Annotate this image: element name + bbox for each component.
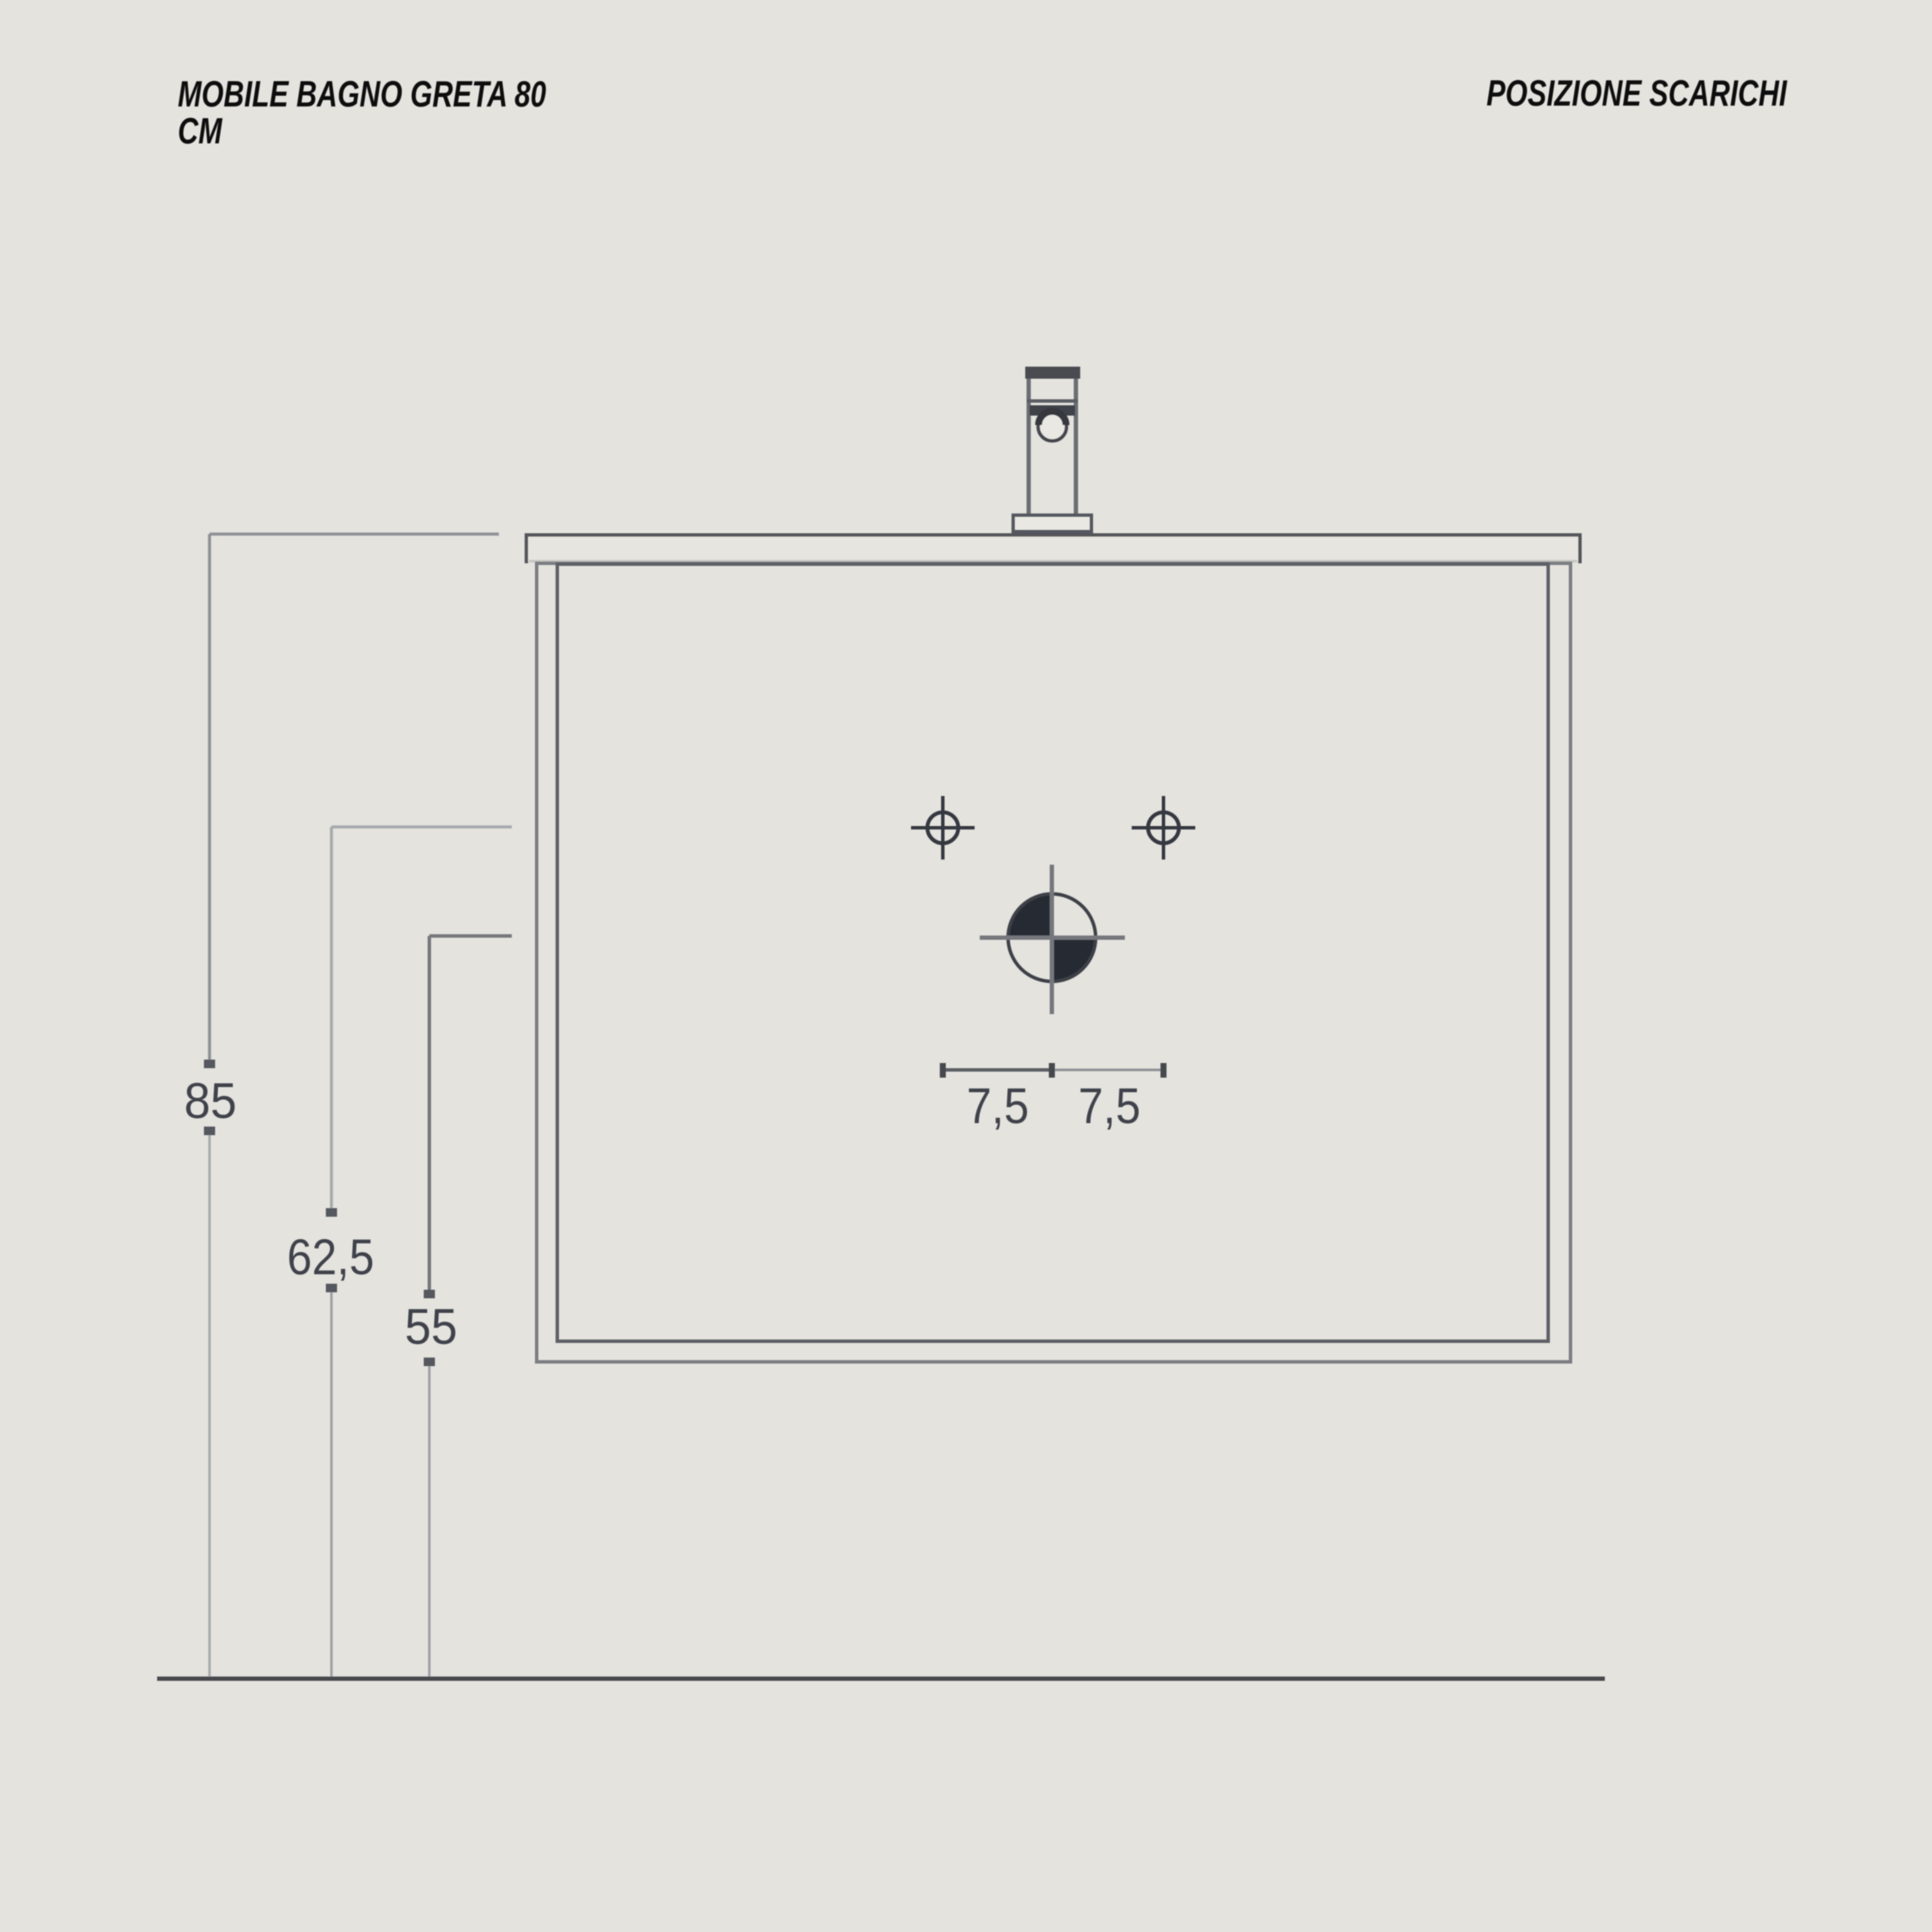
svg-text:POSIZIONE SCARICHI: POSIZIONE SCARICHI bbox=[1486, 74, 1788, 114]
svg-text:55: 55 bbox=[404, 1299, 457, 1355]
svg-text:62,5: 62,5 bbox=[287, 1229, 374, 1285]
svg-text:MOBILE BAGNO GRETA 80: MOBILE BAGNO GRETA 80 bbox=[178, 75, 546, 115]
svg-text:85: 85 bbox=[184, 1073, 236, 1129]
svg-text:7,5: 7,5 bbox=[967, 1078, 1030, 1133]
svg-text:7,5: 7,5 bbox=[1078, 1078, 1141, 1133]
svg-text:CM: CM bbox=[178, 112, 223, 152]
